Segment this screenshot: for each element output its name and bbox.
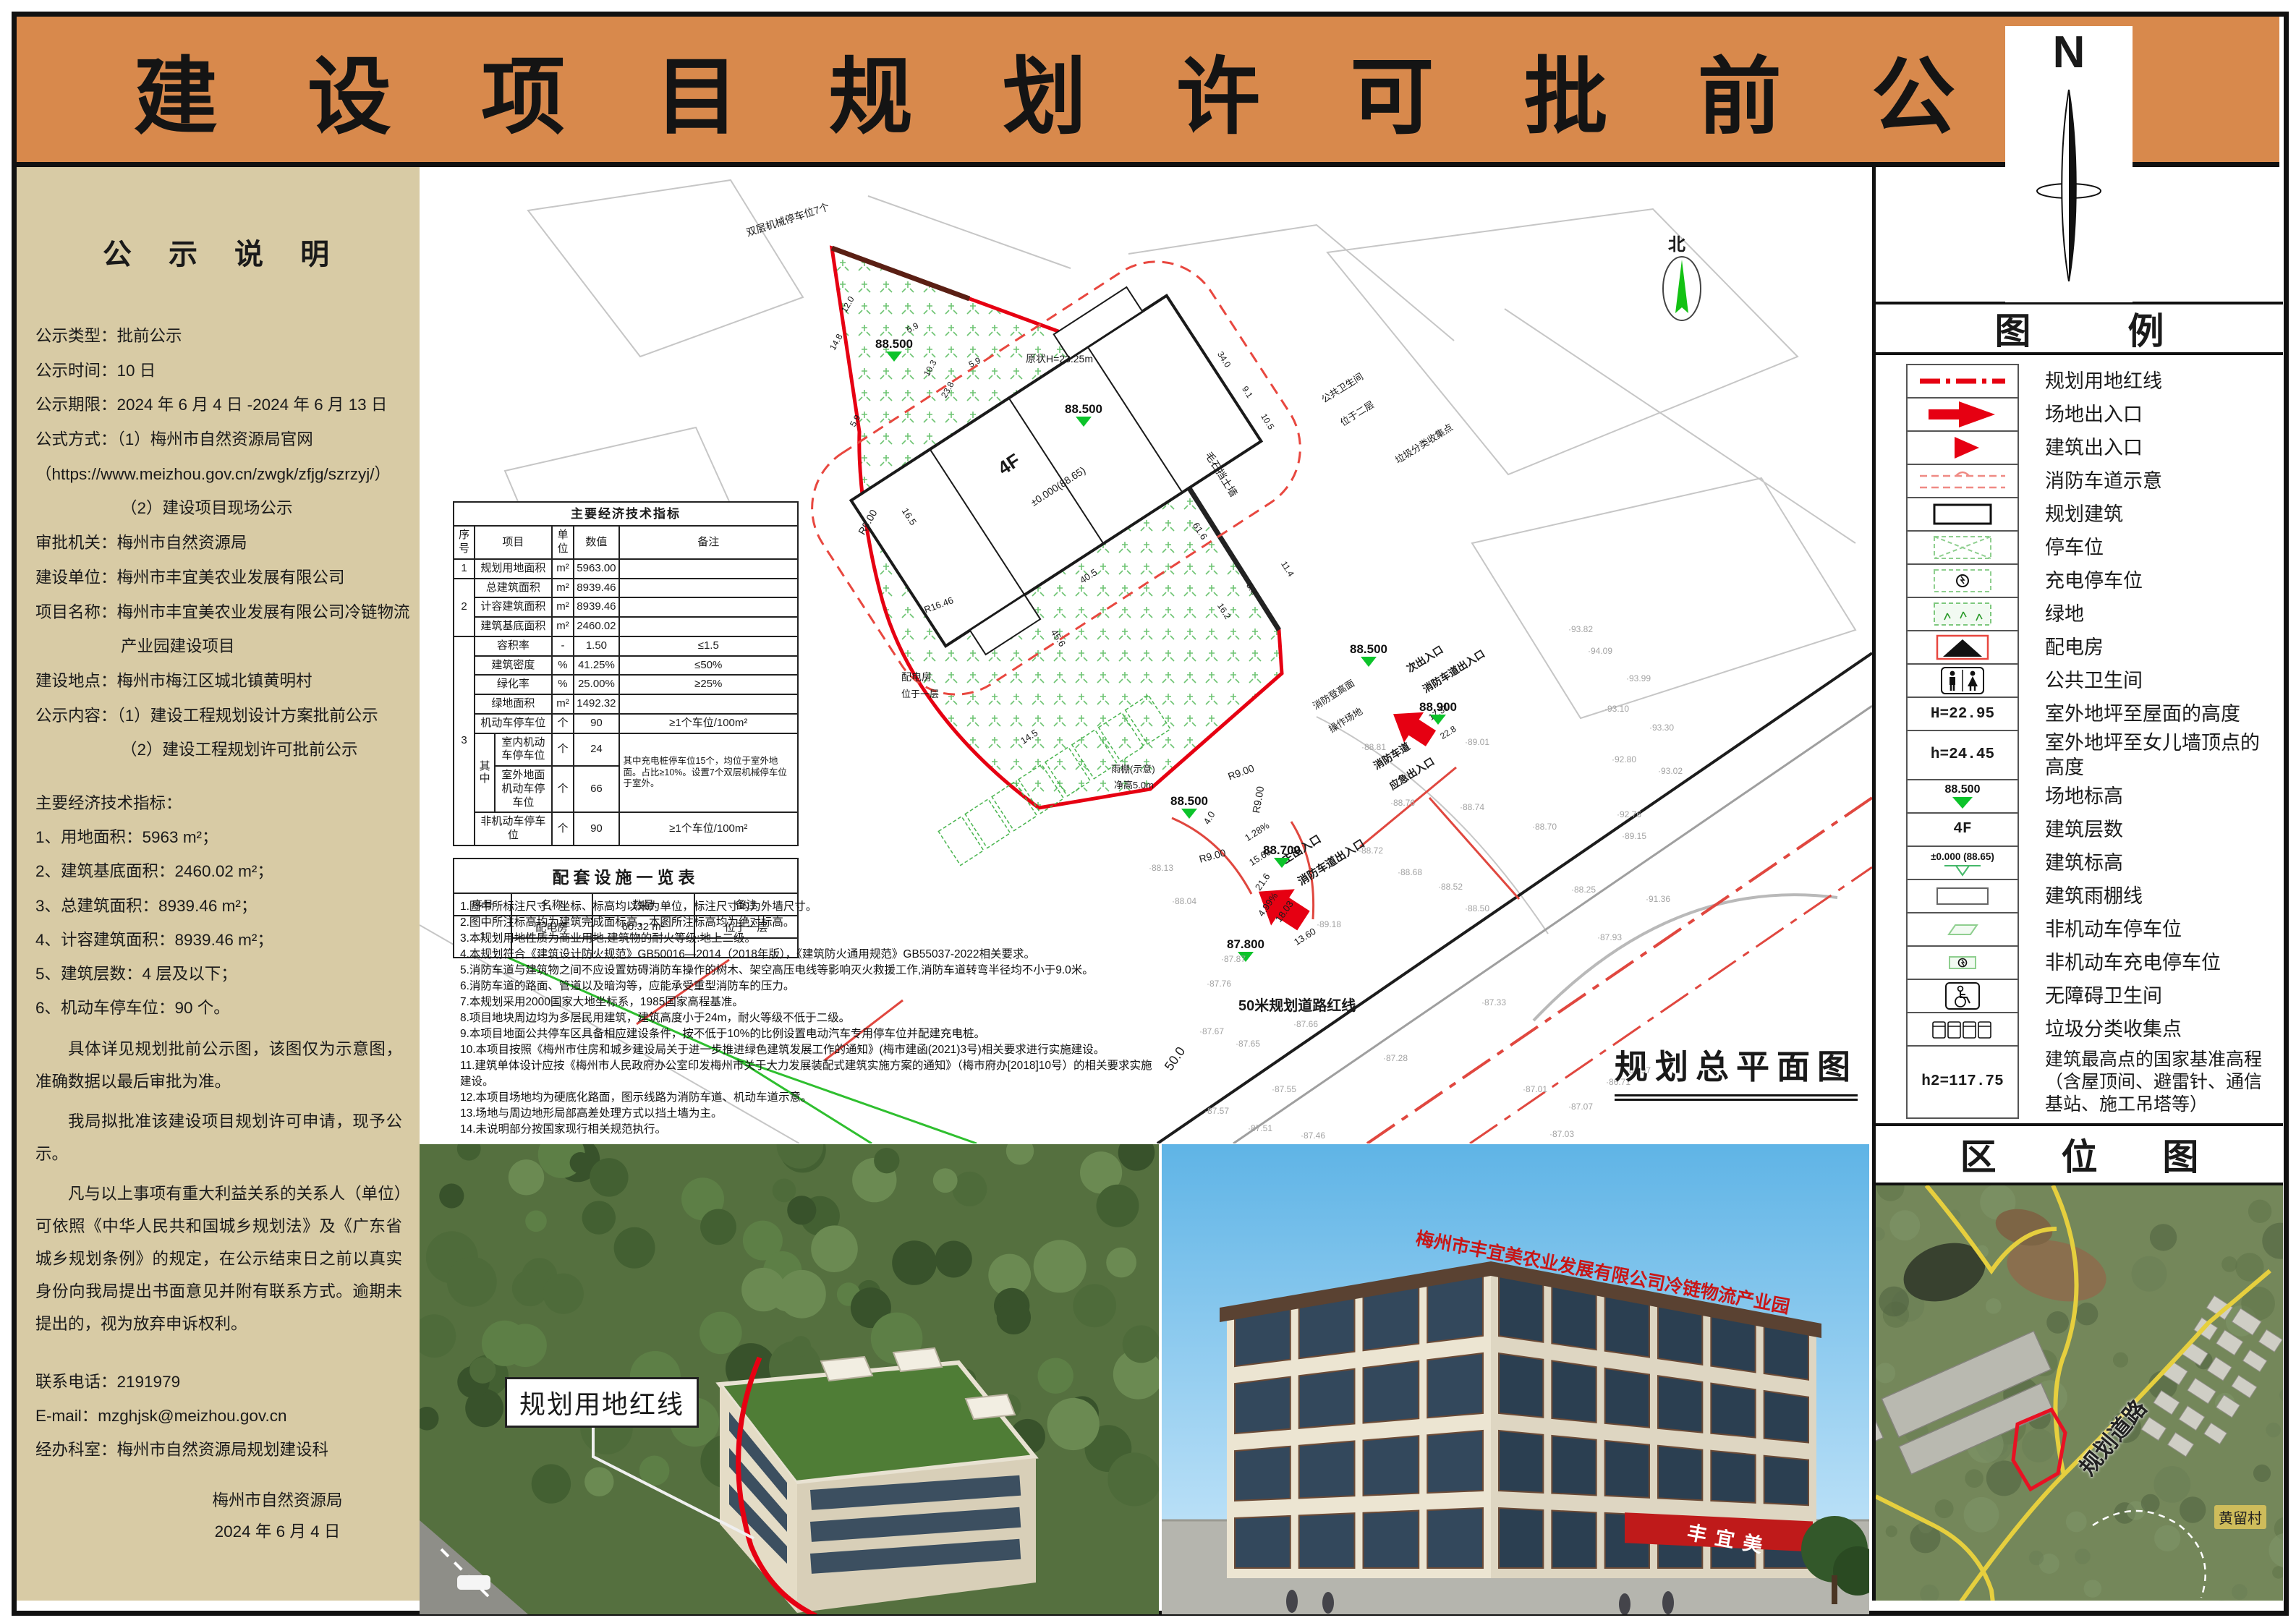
announcement-paragraph: 我局拟批准该建设项目规划许可申请，现予公示。 bbox=[35, 1105, 411, 1170]
plan-note: 14.未说明部分按国家现行相关规范执行。 bbox=[460, 1122, 1155, 1138]
compass-needle-icon bbox=[2025, 75, 2112, 292]
legend-item-label: 绿地 bbox=[2045, 602, 2269, 627]
plan-note: 4.本规划符合《建筑设计防火规范》GB50016—2014（2018年版），《建… bbox=[460, 947, 1155, 963]
announcement-paragraphs: 具体详见规划批前公示图，该图仅为示意图，准确数据以最后审批为准。我局拟批准该建设… bbox=[35, 1033, 411, 1340]
plan-note: 9.本项目地面公共停车区具备相应建设条件，按不低于10%的比例设置电动汽车专用停… bbox=[460, 1026, 1155, 1042]
legend-item: 绿地 bbox=[1876, 598, 2283, 631]
announcement-line: 审批机关：梅州市自然资源局 bbox=[35, 526, 411, 561]
location-map: 规划道路黄留村城北镇黄明村 bbox=[1876, 1185, 2283, 1601]
access-icon bbox=[1906, 979, 2019, 1013]
legend-item: 公共卫生间 bbox=[1876, 665, 2283, 698]
announcement-paragraph: 凡与以上事项有重大利益关系的关系人（单位）可依照《中华人民共和国城乡规划法》及《… bbox=[35, 1177, 411, 1340]
legend-item-label: 无障碍卫生间 bbox=[2045, 984, 2269, 1009]
charge-icon bbox=[1906, 563, 2019, 598]
canopy-icon bbox=[1906, 879, 2019, 913]
satellite-image bbox=[1876, 1185, 2283, 1601]
announcement-line: 公示类型：批前公示 bbox=[35, 319, 411, 354]
footer-org: 梅州市自然资源局 bbox=[144, 1486, 411, 1517]
legend-symbol-text: h2=117.75 bbox=[1921, 1073, 2003, 1090]
facility-table-title: 配套设施一览表 bbox=[454, 859, 798, 893]
plan-notes: 1.图中所标注尺寸、坐标、标高均以米为单位，标注尺寸均为外墙尺寸。2.图中所注标… bbox=[460, 899, 1155, 1138]
legend-item: 88.500场地标高 bbox=[1876, 780, 2283, 814]
bld-arrow-icon bbox=[1906, 430, 2019, 465]
legend-item-label: 公共卫生间 bbox=[2045, 669, 2269, 694]
waste-icon bbox=[1906, 1012, 2019, 1047]
contact-line: E-mail：mzghjsk@meizhou.gov.cn bbox=[35, 1399, 411, 1433]
green-icon bbox=[1906, 597, 2019, 631]
contact-block: 联系电话：2191979E-mail：mzghjsk@meizhou.gov.c… bbox=[35, 1365, 411, 1467]
legend-item: H=22.95室外地坪至屋面的高度 bbox=[1876, 698, 2283, 731]
plan-note: 3.本规划用地性质为商业用地,建筑物的耐火等级:地上二级。 bbox=[460, 931, 1155, 947]
legend-title: 图 例 bbox=[1876, 304, 2283, 355]
site-arrow-icon bbox=[1906, 397, 2019, 432]
legend-item-label: 配电房 bbox=[2045, 636, 2269, 660]
building-rendering: 梅州市丰宜美农业发展有限公司冷链物流产业园丰宜美 bbox=[1162, 1144, 1869, 1614]
legend-item-label: 垃圾分类收集点 bbox=[2045, 1018, 2269, 1042]
legend-item-label: 停车位 bbox=[2045, 536, 2269, 561]
economic-indicator-table: 主要经济技术指标 序号 项目 单位 数值 备注 1规划用地面积m²5963.00… bbox=[453, 501, 799, 846]
plan-note: 11.建筑单体设计应按《梅州市人民政府办公室印发梅州市关于大力发展装配式建筑实施… bbox=[460, 1058, 1155, 1090]
legend-item-label: 建筑标高 bbox=[2045, 851, 2269, 876]
legend-item-label: 非机动车停车位 bbox=[2045, 918, 2269, 942]
legend-item-label: 非机动车充电停车位 bbox=[2045, 951, 2269, 976]
announcement-paragraph: 具体详见规划批前公示图，该图仅为示意图，准确数据以最后审批为准。 bbox=[35, 1033, 411, 1098]
plan-note: 12.本项目场地均为硬底化路面，图示线路为消防车道、机动车道示意。 bbox=[460, 1090, 1155, 1106]
announcement-line: （https://www.meizhou.gov.cn/zwgk/zfjg/sz… bbox=[35, 457, 411, 492]
toilet-icon bbox=[1906, 663, 2019, 698]
legend-item: 4F建筑层数 bbox=[1876, 814, 2283, 847]
plan-tables: 主要经济技术指标 序号 项目 单位 数值 备注 1规划用地面积m²5963.00… bbox=[453, 501, 799, 958]
legend-item-label: 室外地坪至屋面的高度 bbox=[2045, 702, 2269, 727]
parking-icon bbox=[1906, 530, 2019, 565]
indicators-heading: 主要经济技术指标： bbox=[35, 786, 411, 820]
legend-item: 充电停车位 bbox=[1876, 565, 2283, 598]
entrance-arrows bbox=[1247, 699, 1441, 939]
legend-item: 垃圾分类收集点 bbox=[1876, 1013, 2283, 1047]
bldg-icon bbox=[1906, 497, 2019, 532]
legend-item-label: 消防车道示意 bbox=[2045, 469, 2269, 494]
announcement-line: 产业园建设项目 bbox=[35, 629, 411, 664]
announcement-heading: 公 示 说 明 bbox=[35, 231, 411, 273]
legend-panel: 图 例 规划用地红线场地出入口建筑出入口消防车道示意规划建筑停车位充电停车位绿地… bbox=[1872, 167, 2283, 1601]
plan-note: 13.场地与周边地形局部高差处理方式以挡土墙为主。 bbox=[460, 1106, 1155, 1122]
plan-note: 6.消防车道的路面、管道以及暗沟等，应能承受重型消防车的压力。 bbox=[460, 979, 1155, 994]
svg-text:±0.000 (88.65): ±0.000 (88.65) bbox=[1931, 851, 1994, 862]
legend-item: 规划建筑 bbox=[1876, 498, 2283, 532]
legend-item-label: 建筑最高点的国家基准高程（含屋顶间、避雷针、通信基站、施工吊塔等） bbox=[2045, 1049, 2269, 1117]
legend-item-label: 规划建筑 bbox=[2045, 503, 2269, 527]
power-icon bbox=[1906, 630, 2019, 665]
legend-text-symbol: H=22.95 bbox=[1906, 697, 2019, 731]
legend-item: 配电房 bbox=[1876, 631, 2283, 665]
announcement-lines: 公示类型：批前公示公示时间：10 日公示期限：2024 年 6 月 4 日 -2… bbox=[35, 319, 411, 767]
plan-note: 10.本项目按照《梅州市住房和城乡建设局关于进一步推进绿色建筑发展工作的通知》(… bbox=[460, 1042, 1155, 1058]
legend-item: 建筑雨棚线 bbox=[1876, 880, 2283, 913]
legend-item: 消防车道示意 bbox=[1876, 465, 2283, 498]
footer-date: 2024 年 6 月 4 日 bbox=[144, 1517, 411, 1548]
nmcharge-icon bbox=[1906, 945, 2019, 980]
contact-line: 联系电话：2191979 bbox=[35, 1365, 411, 1399]
plan-note: 1.图中所标注尺寸、坐标、标高均以米为单位，标注尺寸均为外墙尺寸。 bbox=[460, 899, 1155, 915]
legend-item-label: 室外地坪至女儿墙顶点的高度 bbox=[2045, 731, 2269, 780]
legend-item: 停车位 bbox=[1876, 532, 2283, 565]
legend-item: 场地出入口 bbox=[1876, 399, 2283, 432]
footer-block: 梅州市自然资源局 2024 年 6 月 4 日 bbox=[35, 1486, 411, 1548]
legend-list: 规划用地红线场地出入口建筑出入口消防车道示意规划建筑停车位充电停车位绿地配电房公… bbox=[1876, 355, 2283, 1123]
site-plan: 主要经济技术指标 序号 项目 单位 数值 备注 1规划用地面积m²5963.00… bbox=[420, 167, 1872, 1143]
svg-text:88.500: 88.500 bbox=[1945, 783, 1981, 796]
aerial-rendering: 规划用地红线 bbox=[420, 1144, 1159, 1614]
planning-permit-poster: 建 设 项 目 规 划 许 可 批 前 公 示 公 示 说 明 公示类型：批前公… bbox=[0, 0, 2296, 1623]
indicator-line: 4、计容建筑面积：8939.46 m²； bbox=[35, 923, 411, 957]
plan-note: 2.图中所注标高均为建筑完成面标高，本图所注标高均为绝对标高。 bbox=[460, 915, 1155, 931]
building-rendering-image: 梅州市丰宜美农业发展有限公司冷链物流产业园丰宜美 bbox=[1162, 1144, 1869, 1614]
contact-line: 经办科室：梅州市自然资源局规划建设科 bbox=[35, 1433, 411, 1467]
indicator-line: 5、建筑层数：4 层及以下； bbox=[35, 957, 411, 991]
indicator-line: 6、机动车停车位：90 个。 bbox=[35, 991, 411, 1025]
plan-note: 7.本规划采用2000国家大地坐标系，1985国家高程基准。 bbox=[460, 994, 1155, 1010]
bldelev-icon: ±0.000 (88.65) bbox=[1906, 845, 2019, 880]
legend-symbol-text: H=22.95 bbox=[1931, 706, 1994, 723]
legend-item-label: 建筑层数 bbox=[2045, 818, 2269, 843]
page-title: 建 设 项 目 规 划 许 可 批 前 公 示 bbox=[134, 29, 2163, 150]
legend-item: 非机动车停车位 bbox=[1876, 913, 2283, 947]
siteelev-icon: 88.500 bbox=[1906, 779, 2019, 814]
nmpark-icon bbox=[1906, 912, 2019, 947]
legend-item: h2=117.75建筑最高点的国家基准高程（含屋顶间、避雷针、通信基站、施工吊塔… bbox=[1876, 1047, 2283, 1119]
announcement-line: 公示时间：10 日 bbox=[35, 354, 411, 388]
redline-icon bbox=[1906, 364, 2019, 399]
announcement-line: 公示内容：（1）建设工程规划设计方案批前公示 bbox=[35, 699, 411, 733]
legend-item: 规划用地红线 bbox=[1876, 365, 2283, 399]
legend-text-symbol: 4F bbox=[1906, 812, 2019, 847]
announcement-line: 项目名称：梅州市丰宜美农业发展有限公司冷链物流 bbox=[35, 595, 411, 630]
legend-item-label: 建筑出入口 bbox=[2045, 436, 2269, 461]
legend-item-label: 场地出入口 bbox=[2045, 403, 2269, 427]
north-n-label: N bbox=[2053, 30, 2085, 75]
legend-text-symbol: h=24.45 bbox=[1906, 730, 2019, 780]
announcement-panel: 公 示 说 明 公示类型：批前公示公示时间：10 日公示期限：2024 年 6 … bbox=[17, 167, 420, 1601]
location-map-title: 区 位 图 bbox=[1876, 1123, 2283, 1185]
legend-item-label: 充电停车位 bbox=[2045, 569, 2269, 594]
announcement-line: 建设地点：梅州市梅江区城北镇黄明村 bbox=[35, 664, 411, 699]
north-compass-icon bbox=[1663, 257, 1701, 320]
redline-callout-label: 规划用地红线 bbox=[505, 1377, 699, 1428]
table-title: 主要经济技术指标 bbox=[454, 502, 798, 526]
indicator-line: 3、总建筑面积：8939.46 m²； bbox=[35, 889, 411, 923]
legend-item: h=24.45室外地坪至女儿墙顶点的高度 bbox=[1876, 731, 2283, 780]
legend-symbol-text: 4F bbox=[1953, 821, 1971, 838]
legend-item: ±0.000 (88.65)建筑标高 bbox=[1876, 847, 2283, 880]
legend-symbol-text: h=24.45 bbox=[1931, 746, 1994, 763]
legend-item: 建筑出入口 bbox=[1876, 432, 2283, 465]
site-plan-title: 规划总平面图 bbox=[1615, 1041, 1858, 1101]
legend-item-label: 场地标高 bbox=[2045, 785, 2269, 809]
announcement-line: 公示期限：2024 年 6 月 4 日 -2024 年 6 月 13 日 bbox=[35, 388, 411, 422]
plan-note: 8.项目地块周边均为多层民用建筑，建筑高度小于24m，耐火等级不低于二级。 bbox=[460, 1010, 1155, 1026]
announcement-line: 公式方式：（1）梅州市自然资源局官网 bbox=[35, 422, 411, 457]
indicators-list: 1、用地面积：5963 m²；2、建筑基底面积：2460.02 m²；3、总建筑… bbox=[35, 820, 411, 1026]
indicator-line: 2、建筑基底面积：2460.02 m²； bbox=[35, 854, 411, 888]
legend-text-symbol: h2=117.75 bbox=[1906, 1045, 2019, 1119]
legend-item-label: 建筑雨棚线 bbox=[2045, 885, 2269, 909]
road-arc bbox=[1534, 895, 1837, 1021]
plan-note: 5.消防车道与建筑物之间不应设置妨碍消防车操作的树木、架空高压电线等影响灭火救援… bbox=[460, 963, 1155, 979]
legend-item-label: 规划用地红线 bbox=[2045, 370, 2269, 394]
firelane-icon bbox=[1906, 464, 2019, 498]
indicator-line: 1、用地面积：5963 m²； bbox=[35, 820, 411, 854]
announcement-line: （2）建设工程规划许可批前公示 bbox=[35, 733, 411, 767]
legend-item: 非机动车充电停车位 bbox=[1876, 947, 2283, 980]
announcement-line: 建设单位：梅州市丰宜美农业发展有限公司 bbox=[35, 561, 411, 595]
announcement-line: （2）建设项目现场公示 bbox=[35, 491, 411, 526]
north-compass: N bbox=[2005, 26, 2133, 302]
legend-item: 无障碍卫生间 bbox=[1876, 980, 2283, 1013]
page-title-bar: 建 设 项 目 规 划 许 可 批 前 公 示 bbox=[17, 17, 2279, 167]
